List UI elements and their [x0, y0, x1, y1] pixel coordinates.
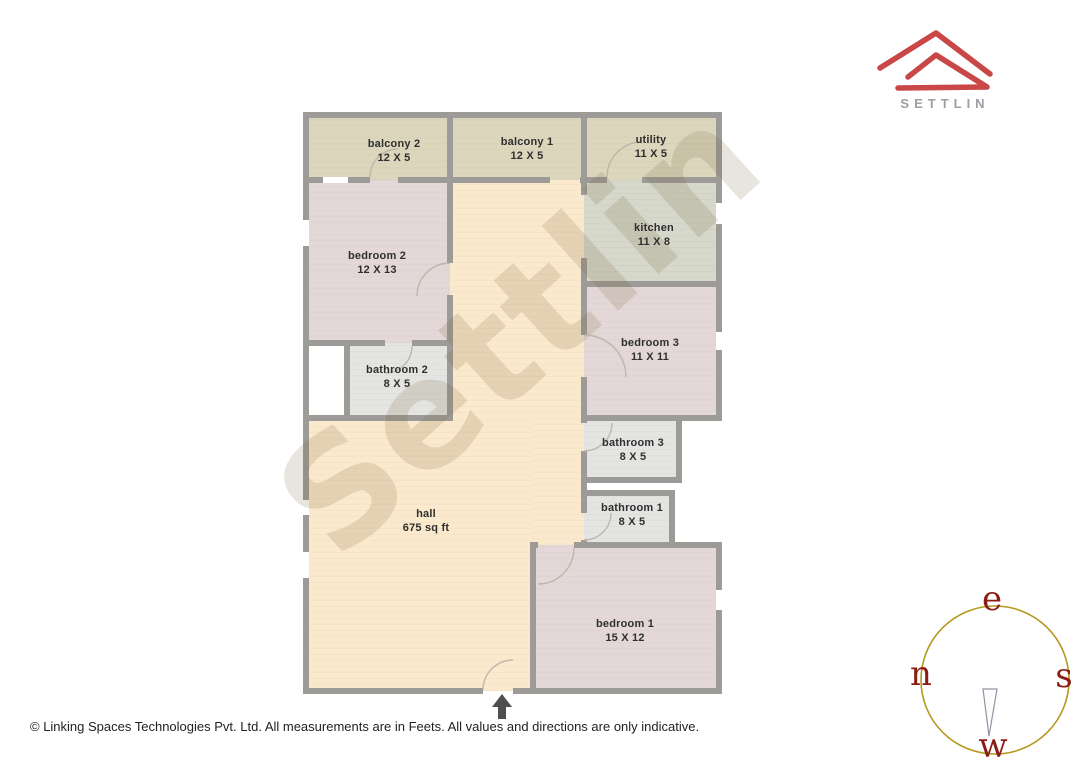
wall	[530, 542, 536, 694]
wall	[716, 112, 722, 203]
wall	[581, 258, 587, 335]
settlin-logo-icon	[862, 18, 1002, 96]
wall	[716, 224, 722, 332]
wall	[716, 543, 722, 590]
wall	[303, 688, 483, 694]
entrance-arrow-icon	[492, 694, 512, 719]
wall	[303, 578, 309, 694]
window	[716, 203, 722, 224]
footer-disclaimer: © Linking Spaces Technologies Pvt. Ltd. …	[30, 719, 699, 734]
wall	[303, 415, 453, 421]
wall	[581, 540, 587, 548]
wall	[303, 515, 309, 552]
wall	[581, 281, 722, 287]
wall	[344, 340, 350, 421]
wall	[303, 112, 722, 118]
wall	[447, 112, 453, 263]
hall-floor-lower	[306, 418, 533, 691]
wall	[447, 295, 453, 421]
window	[716, 590, 722, 610]
room-label-bedroom3: bedroom 311 X 11	[621, 336, 679, 364]
window	[303, 500, 309, 515]
wall	[348, 177, 370, 183]
wall	[581, 112, 587, 195]
wall	[676, 418, 682, 483]
room-label-bedroom2: bedroom 212 X 13	[348, 249, 406, 277]
compass-west: w	[978, 726, 1007, 764]
wall	[581, 377, 587, 423]
wall	[716, 610, 722, 694]
wall	[303, 112, 309, 220]
room-label-balcony2: balcony 212 X 5	[368, 137, 421, 165]
wall	[581, 477, 682, 483]
wall	[581, 451, 587, 513]
compass-south: s	[1055, 656, 1072, 696]
room-label-hall: hall675 sq ft	[403, 507, 449, 535]
room-label-bedroom1: bedroom 115 X 12	[596, 617, 654, 645]
wall	[574, 542, 722, 548]
wall	[716, 350, 722, 421]
room-label-balcony1: balcony 112 X 5	[501, 135, 554, 163]
room-label-bathroom3: bathroom 38 X 5	[602, 436, 664, 464]
room-label-bathroom1: bathroom 18 X 5	[601, 501, 663, 529]
wall	[669, 490, 675, 548]
wall	[581, 490, 675, 496]
window	[303, 220, 309, 246]
wall	[303, 246, 309, 500]
wall	[642, 177, 722, 183]
wall	[581, 415, 722, 421]
room-label-utility: utility11 X 5	[635, 133, 667, 161]
wall	[513, 688, 722, 694]
wall	[398, 177, 550, 183]
window	[716, 332, 722, 350]
window	[303, 552, 309, 578]
compass-east: e	[982, 588, 1002, 619]
window	[323, 177, 348, 183]
room-label-kitchen: kitchen11 X 8	[634, 221, 674, 249]
compass: e n s w	[910, 588, 1080, 764]
settlin-logo-text: SETTLIN	[880, 96, 1010, 111]
compass-north: n	[910, 654, 932, 694]
room-label-bathroom2: bathroom 28 X 5	[366, 363, 428, 391]
